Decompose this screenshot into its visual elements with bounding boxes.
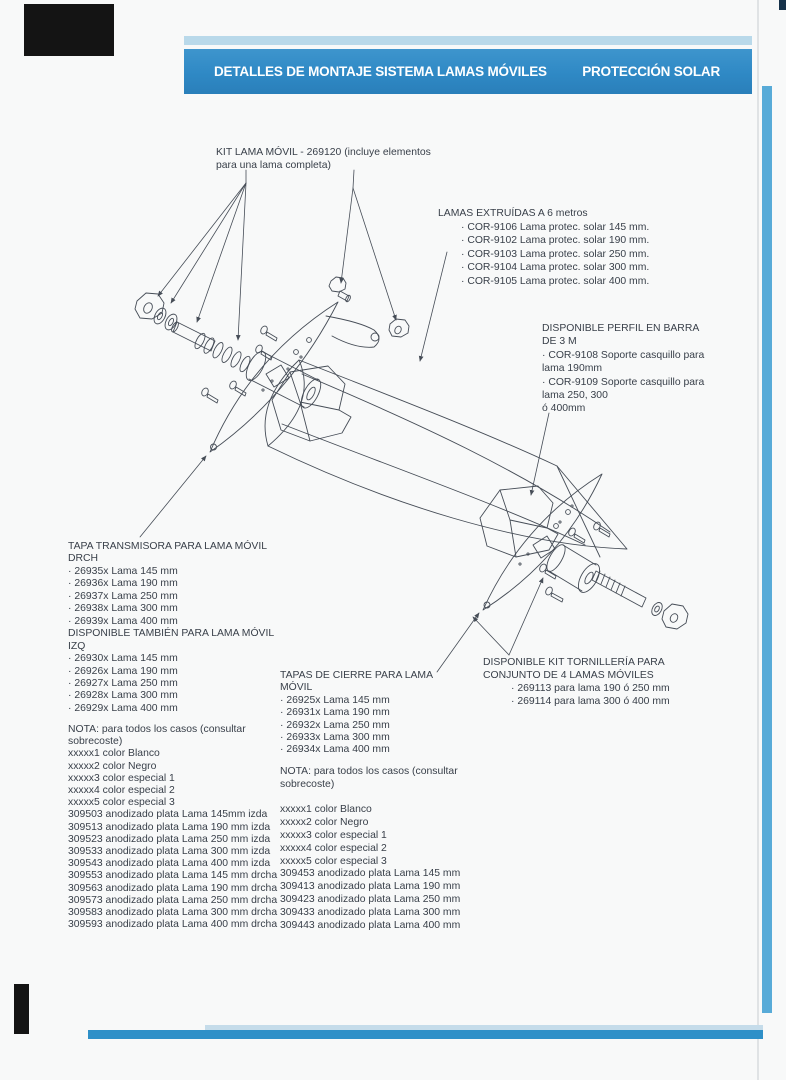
left-fastener-chain [135, 293, 325, 411]
nota-tapa-transmisora: NOTA: para todos los casos (consultar so… [68, 724, 277, 931]
right-fastener-chain [543, 542, 688, 629]
bottom-bar [88, 1030, 763, 1039]
tapa-transmisora-label: TAPA TRANSMISORA PARA LAMA MÓVIL DRCH · … [68, 541, 274, 715]
lamas-extruidas-title: LAMAS EXTRUÍDAS A 6 metros [438, 207, 588, 220]
kit-tornilleria-title: DISPONIBLE KIT TORNILLERÍA PARA CONJUNTO… [483, 656, 665, 682]
tapas-cierre-label: TAPAS DE CIERRE PARA LAMA MÓVIL · 26925x… [280, 670, 433, 757]
top-bolt [329, 277, 351, 303]
nota-tapas-cierre: NOTA: para todos los casos (consultar so… [280, 766, 460, 932]
lamas-extruidas-items: · COR-9106 Lama protec. solar 145 mm. · … [461, 221, 649, 288]
perfil-barra-label: DISPONIBLE PERFIL EN BARRA DE 3 M · COR-… [542, 322, 772, 416]
support-bracket-right [480, 486, 558, 557]
left-end-plate [210, 302, 379, 452]
small-nut [389, 319, 409, 337]
right-screws [538, 521, 610, 602]
kit-lama-label: KIT LAMA MÓVIL - 269120 (incluye element… [216, 146, 466, 172]
kit-tornilleria-items: · 269113 para lama 190 ó 250 mm · 269114… [511, 682, 670, 708]
catalog-page: DETALLES DE MONTAJE SISTEMA LAMAS MÓVILE… [0, 0, 786, 1080]
scan-left-black-nub [14, 984, 29, 1034]
